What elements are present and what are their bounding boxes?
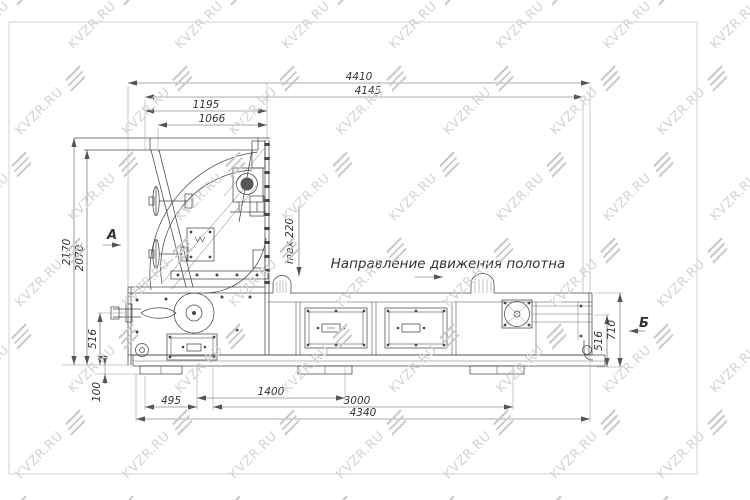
dim-1195-label: 1195 — [193, 99, 220, 111]
technical-drawing: 4410 4145 1195 1066 2170 2070 516 100 ma… — [0, 0, 750, 500]
dim-100-label: 100 — [91, 382, 103, 402]
dim-495-label: 495 — [161, 395, 181, 407]
conveyor-body — [111, 274, 593, 366]
dim-4145-label: 4145 — [355, 85, 382, 97]
base-frame — [128, 355, 605, 374]
dim-4410-label: 4410 — [346, 71, 373, 83]
dim-max-220-label: max 220 — [284, 218, 296, 265]
dim-516-left-label: 516 — [87, 329, 99, 349]
extension-lines — [62, 83, 623, 422]
dim-3000-label: 3000 — [344, 395, 371, 407]
dim-710-label: 710 — [606, 320, 618, 340]
view-a-label: А — [106, 228, 117, 243]
view-b-label: Б — [639, 316, 649, 331]
dim-516-right-label: 516 — [593, 331, 605, 351]
dim-1400-label: 1400 — [258, 386, 285, 398]
dim-2070-label: 2070 — [74, 244, 86, 271]
hopper-unit — [74, 138, 270, 297]
dimension-annotations — [62, 83, 645, 422]
drawing-sheet: 4410 4145 1195 1066 2170 2070 516 100 ma… — [0, 0, 750, 500]
dim-4340-label: 4340 — [350, 407, 377, 419]
dim-2170-label: 2170 — [61, 238, 73, 265]
dim-1066-label: 1066 — [199, 113, 226, 125]
web-direction-label: Направление движения полотна — [331, 256, 566, 272]
dimension-labels: 4410 4145 1195 1066 2170 2070 516 100 ma… — [61, 71, 649, 419]
